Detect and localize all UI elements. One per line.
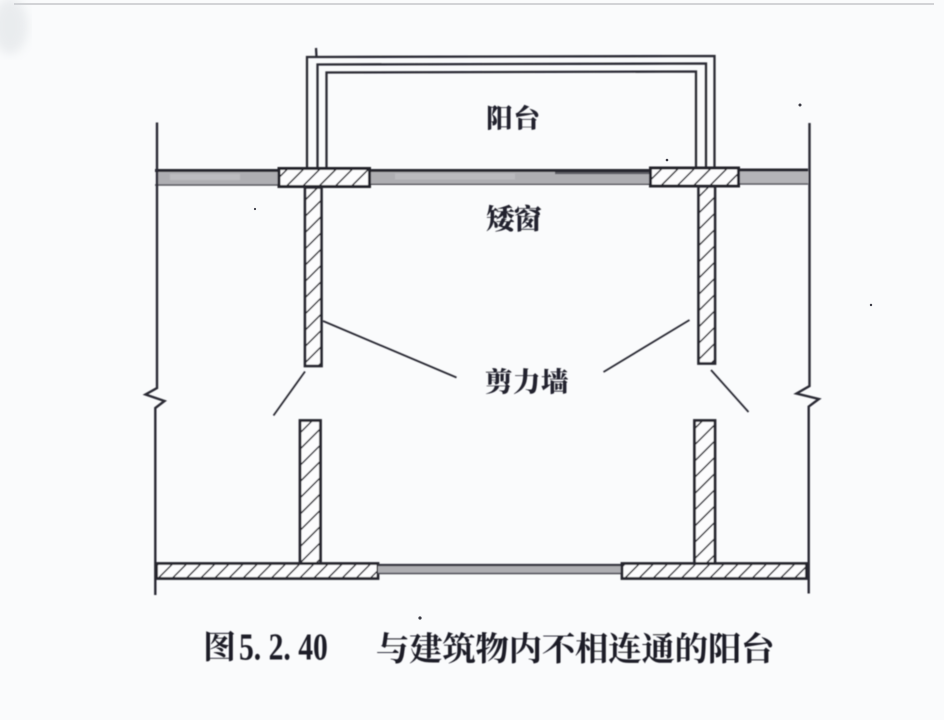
- svg-text:5. 2. 40: 5. 2. 40: [239, 627, 328, 668]
